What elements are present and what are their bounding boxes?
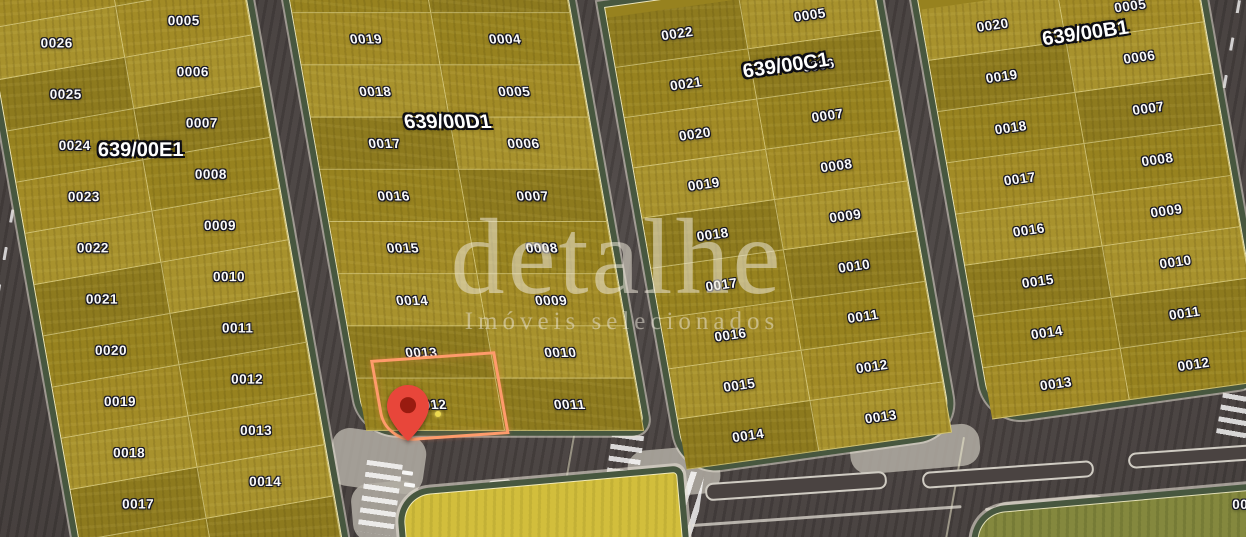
parcel-number: 0006 [177,64,209,79]
parcel-number: 0011 [222,320,253,335]
parcel-number: 0008 [195,167,227,182]
parcel-number: 0019 [349,31,384,46]
parcel-number: 0007 [515,188,550,203]
parcel-block[interactable]: 0022000500210006002000070019000800180009… [604,0,953,469]
parcel[interactable] [283,0,431,13]
parcel-number: 0011 [553,397,587,412]
parcel-number: 0006 [506,136,541,151]
block-label: 639/00E1 [98,139,184,162]
parcel-number: 0007 [810,105,844,124]
parcel-block[interactable]: 0020000500190006001800070017000800160009… [917,0,1246,419]
parcel-number: 0022 [77,240,109,255]
parcel[interactable]: 0010 [487,326,635,378]
parcel[interactable]: 0007 [459,170,607,222]
parcel-number: 0007 [186,116,218,131]
parcel-number: 0019 [687,174,721,193]
parcel-number: 0019 [104,394,136,409]
parcel-number: 0018 [113,445,145,460]
parcel-number: 0019 [985,67,1019,86]
map-canvas[interactable]: 0026000500250006002400070023000800220009… [0,0,1246,537]
parcel-number: 0009 [828,206,862,225]
crosswalk [1215,381,1246,443]
parcel-number: 0015 [722,375,756,394]
parcel-number: 0016 [713,325,747,344]
parcel-number: 0007 [1131,99,1165,118]
parcel-number: 0012 [855,356,889,375]
parcel-number: 0008 [819,156,853,175]
parcel-number: 0015 [1021,272,1055,291]
parcel-block[interactable]: 0026000500250006002400070023000800220009… [0,0,344,537]
parcel-number: 0011 [846,306,880,325]
parcel-number: 0013 [240,423,272,438]
parcel[interactable]: 0004 [431,13,579,65]
parcel[interactable]: 0011 [496,379,644,431]
parcel[interactable]: 0005 [441,65,589,117]
parcel-number: 0014 [249,474,281,489]
parcel-number: 0012 [231,372,263,387]
parcel-number: 0016 [376,188,411,203]
parcel-number: 0005 [497,84,532,99]
parcel-number: 0014 [395,292,430,307]
parcel-number: 0010 [543,345,578,360]
parcel[interactable]: 0015 [329,222,477,274]
parcel-number: 0018 [695,224,729,243]
parcel-number: 0004 [488,31,523,46]
parcel-number: 0001 [1232,497,1246,512]
parcel-number: 0017 [122,496,154,511]
parcel-number: 0011 [1168,304,1202,323]
parcel-number: 0025 [50,87,82,102]
parcel[interactable]: 0018 [302,65,450,117]
parcel[interactable]: 0009 [478,274,626,326]
parcel-number: 0021 [669,74,703,93]
parcel-number: 0005 [1113,0,1147,16]
parcel-number: 0009 [204,218,236,233]
yellow-dot-marker [435,411,441,417]
parcel-number: 0010 [213,269,245,284]
parcel-number: 0021 [86,292,118,307]
parcel-number: 0009 [1149,201,1183,220]
red-map-pin-icon[interactable] [387,385,429,441]
bottom-center-block[interactable] [402,472,683,537]
parcel-number: 0020 [975,16,1009,35]
parcel-number: 0013 [1039,374,1073,393]
parcel-number: 0010 [1158,252,1192,271]
parking-line [692,505,962,527]
median-island [1128,443,1246,469]
parcel[interactable]: 0016 [320,170,468,222]
block-label: 639/00D1 [402,111,493,134]
parcel-number: 0008 [1140,150,1174,169]
parcel-number: 0009 [534,292,569,307]
parcel-number: 0015 [385,240,420,255]
parcel-number: 0026 [41,36,73,51]
parcel-number: 0014 [731,425,765,444]
parcel[interactable]: 0019 [292,13,440,65]
bottom-right-block[interactable]: 0001 [975,488,1246,537]
parcel-number: 0005 [793,5,827,24]
parcel-number: 0017 [367,136,402,151]
parcel[interactable]: 0008 [468,222,616,274]
parcel-number: 0006 [1122,48,1156,67]
parcel-number: 0013 [864,407,898,426]
parcel-number: 0020 [95,343,127,358]
parcel-number: 0018 [358,84,393,99]
parcel-number: 0022 [660,23,694,42]
parcel-number: 0014 [1030,323,1064,342]
parcel-number: 0008 [524,240,559,255]
parcel-number: 0016 [1012,220,1046,239]
parcel-number: 0024 [59,138,91,153]
parcel-number: 0005 [168,13,200,28]
parcel-number: 0023 [68,189,100,204]
parcel-number: 0012 [1176,355,1210,374]
parcel[interactable]: 0014 [339,274,487,326]
median-island [705,471,888,502]
lane-dashes [0,172,21,537]
parcel-number: 0018 [994,118,1028,137]
parcel-number: 0020 [678,124,712,143]
parcel[interactable] [422,0,570,13]
parcel-number: 0017 [704,275,738,294]
parcel-number: 0010 [837,256,871,275]
parcel-number: 0017 [1003,169,1037,188]
